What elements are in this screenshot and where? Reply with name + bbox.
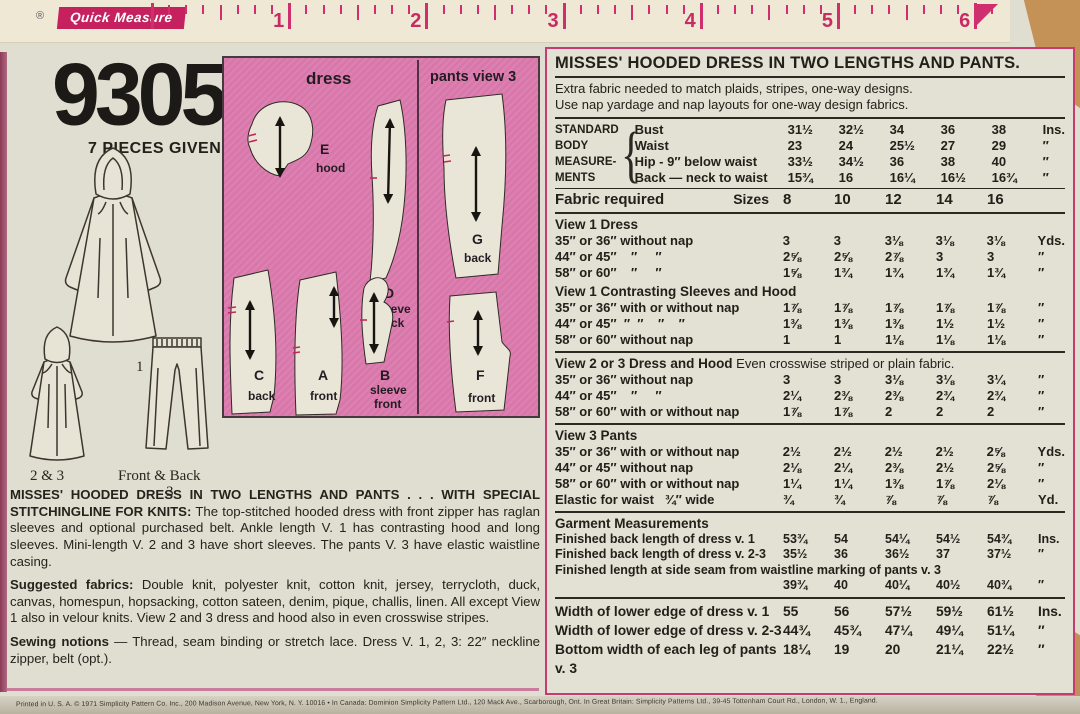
row-value: 37½ bbox=[987, 547, 1038, 563]
table-row: 35″ or 36″ with or without nap2½2½2½2½2⅝… bbox=[555, 444, 1065, 460]
row-value: 1⅜ bbox=[834, 316, 885, 332]
row-label: 35″ or 36″ with or without nap bbox=[555, 300, 783, 316]
row-unit: ″ bbox=[1038, 316, 1065, 332]
sewing-notions-lead: Sewing notions bbox=[10, 634, 109, 649]
body-measurements-block: STANDARDBODYMEASURE-MENTS { Bust31½32½34… bbox=[555, 122, 1065, 186]
description-paragraph: MISSES' HOODED DRESS IN TWO LENGTHS AND … bbox=[10, 487, 540, 570]
row-value: 3 bbox=[834, 372, 885, 388]
row-value: 3 bbox=[783, 372, 834, 388]
ruler-tick bbox=[837, 3, 840, 29]
row-value: 16½ bbox=[941, 170, 992, 186]
row-label: 58″ or 60″ ″ ″ bbox=[555, 265, 783, 281]
row-value: 2⅞ bbox=[885, 249, 936, 265]
row-value: 36 bbox=[834, 547, 885, 563]
row-label: Bottom width of each leg of pants v. 3 bbox=[555, 640, 783, 678]
table-row: 44″ or 45″ ″ ″ ″ ″1⅜1⅜1⅜1½1½″ bbox=[555, 316, 1065, 332]
row-value: 18¼ bbox=[783, 640, 834, 678]
row-value: 1⅞ bbox=[936, 300, 987, 316]
ruler-tick bbox=[511, 5, 513, 14]
row-value: 19 bbox=[834, 640, 885, 678]
row-label: Back — neck to waist bbox=[635, 170, 788, 186]
row-value: 38 bbox=[941, 154, 992, 170]
row-value: 2 bbox=[987, 404, 1038, 420]
row-label bbox=[555, 578, 783, 594]
row-value: 2⅝ bbox=[987, 444, 1038, 460]
suggested-fabrics-lead: Suggested fabrics: bbox=[10, 577, 133, 592]
suggested-fabrics-paragraph: Suggested fabrics: Double knit, polyeste… bbox=[10, 577, 540, 627]
row-unit: ″ bbox=[1038, 621, 1065, 640]
row-label: 35″ or 36″ without nap bbox=[555, 233, 783, 249]
row-value: 1⅛ bbox=[987, 332, 1038, 348]
row-value: 53¾ bbox=[783, 532, 834, 548]
ruler-tick bbox=[237, 5, 239, 14]
pattern-envelope-back: ® Quick Measure 123456 9305 7 PIECES GIV… bbox=[0, 0, 1080, 714]
row-value: 29 bbox=[992, 138, 1043, 154]
row-label: 44″ or 45″ ″ ″ ″ ″ bbox=[555, 316, 783, 332]
intro-line: Use nap yardage and nap layouts for one-… bbox=[555, 97, 1065, 113]
dress23-hood bbox=[44, 327, 70, 363]
row-value: 40½ bbox=[936, 578, 987, 594]
row-value: 2½ bbox=[936, 444, 987, 460]
pants-caption: Front & Back bbox=[118, 468, 201, 484]
ruler-tick bbox=[528, 5, 530, 14]
table-row: 35″ or 36″ with or without nap1⅞1⅞1⅞1⅞1⅞… bbox=[555, 300, 1065, 316]
ruler-tick bbox=[923, 5, 925, 14]
row-value: 36 bbox=[941, 122, 992, 138]
ruler-tick bbox=[323, 5, 325, 14]
row-value: 24 bbox=[839, 138, 890, 154]
row-value: 3⅛ bbox=[885, 233, 936, 249]
size-value: 14 bbox=[936, 191, 987, 208]
ruler-tick bbox=[631, 5, 633, 20]
row-value: ¾ bbox=[834, 492, 885, 508]
row-value: 2½ bbox=[783, 444, 834, 460]
fabric-required-label: Fabric required bbox=[555, 191, 664, 208]
ruler-tick bbox=[288, 3, 291, 29]
section-title: Garment Measurements bbox=[555, 516, 1065, 532]
row-label: Elastic for waist ¾″ wide bbox=[555, 492, 783, 508]
row-unit: ″ bbox=[1038, 300, 1065, 316]
ruler-number: 1 bbox=[264, 10, 284, 33]
pants-panel-header: pants view 3 bbox=[430, 69, 516, 85]
row-label: 58″ or 60″ with or without nap bbox=[555, 404, 783, 420]
rule bbox=[555, 76, 1065, 78]
body-measurements-header: STANDARDBODYMEASURE-MENTS bbox=[555, 122, 621, 186]
row-value: 3 bbox=[834, 233, 885, 249]
piece-name: front bbox=[310, 389, 337, 403]
dress-panel-header: dress bbox=[306, 69, 351, 88]
ruler-tick bbox=[220, 5, 222, 20]
yardage-section: View 1 Contrasting Sleeves and Hood35″ o… bbox=[555, 284, 1065, 348]
row-label: Width of lower edge of dress v. 2-3 bbox=[555, 621, 783, 640]
row-value: 16 bbox=[839, 170, 890, 186]
row-value: 3⅛ bbox=[936, 233, 987, 249]
piece-letter: C bbox=[254, 367, 264, 383]
piece-letter: E bbox=[320, 141, 329, 157]
row-unit: Ins. bbox=[1038, 602, 1065, 621]
row-unit: ″ bbox=[1038, 476, 1065, 492]
row-value: 3 bbox=[936, 249, 987, 265]
row-unit: ″ bbox=[1038, 578, 1065, 594]
table-row: Finished back length of dress v. 2-335½3… bbox=[555, 547, 1065, 563]
row-value: 51¼ bbox=[987, 621, 1038, 640]
row-label: 44″ or 45″ ″ ″ bbox=[555, 249, 783, 265]
row-label: 44″ or 45″ without nap bbox=[555, 460, 783, 476]
row-value: 49¼ bbox=[936, 621, 987, 640]
row-value: 2¾ bbox=[987, 388, 1038, 404]
row-value: 2½ bbox=[885, 444, 936, 460]
ruler-tick bbox=[185, 5, 187, 14]
row-value: 1⅜ bbox=[885, 316, 936, 332]
row-value: 2⅛ bbox=[987, 476, 1038, 492]
ruler-tick bbox=[751, 5, 753, 14]
row-value: 55 bbox=[783, 602, 834, 621]
row-value: 40¼ bbox=[885, 578, 936, 594]
table-row: Elastic for waist ¾″ wide¾¾⅞⅞⅞Yd. bbox=[555, 492, 1065, 508]
notch bbox=[447, 321, 454, 322]
row-value: 2½ bbox=[834, 444, 885, 460]
row-value: 1⅞ bbox=[783, 300, 834, 316]
row-value: 2¼ bbox=[834, 460, 885, 476]
yardage-sections: View 1 Dress35″ or 36″ without nap333⅛3⅛… bbox=[555, 217, 1065, 599]
row-unit: ″ bbox=[1038, 460, 1065, 476]
row-value: 61½ bbox=[987, 602, 1038, 621]
row-unit: ″ bbox=[1038, 372, 1065, 388]
row-value: 47¼ bbox=[885, 621, 936, 640]
row-value: 16¾ bbox=[992, 170, 1043, 186]
row-unit: Yds. bbox=[1038, 233, 1065, 249]
envelope-bottom-edge bbox=[6, 688, 539, 691]
ruler-tick bbox=[425, 3, 428, 29]
row-value: 2¾ bbox=[936, 388, 987, 404]
row-value: 54½ bbox=[936, 532, 987, 548]
row-value: 1 bbox=[834, 332, 885, 348]
table-row: 44″ or 45″ ″ ″2¼2⅜2⅜2¾2¾″ bbox=[555, 388, 1065, 404]
row-value: 1½ bbox=[936, 316, 987, 332]
row-unit: ″ bbox=[1038, 388, 1065, 404]
ruler-tick bbox=[151, 3, 154, 29]
view23-label: 2 & 3 bbox=[30, 468, 64, 484]
table-row: 35″ or 36″ without nap333⅛3⅛3⅛Yds. bbox=[555, 233, 1065, 249]
row-unit: ″ bbox=[1038, 265, 1065, 281]
ruler-tick bbox=[340, 5, 342, 14]
ruler-tick bbox=[940, 5, 942, 14]
piece-name: front bbox=[374, 397, 401, 411]
row-value: 1⅞ bbox=[834, 300, 885, 316]
row-value: 3 bbox=[783, 233, 834, 249]
row-value: 20 bbox=[885, 640, 936, 678]
notch bbox=[228, 312, 236, 313]
row-value: ⅞ bbox=[987, 492, 1038, 508]
ruler-tick bbox=[305, 5, 307, 14]
piece-letter: A bbox=[318, 367, 328, 383]
notch bbox=[228, 307, 236, 308]
row-value: 1⅛ bbox=[885, 332, 936, 348]
row-value: 2¼ bbox=[783, 388, 834, 404]
ruler-tick bbox=[906, 5, 908, 20]
table-row: 58″ or 60″ with or without nap1⅞1⅞222″ bbox=[555, 404, 1065, 420]
row-value: 2⅜ bbox=[885, 388, 936, 404]
piece-name: back bbox=[464, 251, 492, 265]
row-value: 1 bbox=[783, 332, 834, 348]
row-unit: Ins. bbox=[1038, 532, 1065, 548]
piece-name: front bbox=[468, 391, 495, 405]
panel-title: MISSES' HOODED DRESS IN TWO LENGTHS AND … bbox=[555, 54, 1065, 73]
yardage-section: View 1 Dress35″ or 36″ without nap333⅛3⅛… bbox=[555, 217, 1065, 281]
ruler-tick bbox=[254, 5, 256, 14]
rule bbox=[555, 212, 1065, 214]
ruler-tick bbox=[717, 5, 719, 14]
row-value: 1¾ bbox=[987, 265, 1038, 281]
row-value: 54¾ bbox=[987, 532, 1038, 548]
row-label: 58″ or 60″ without nap bbox=[555, 332, 783, 348]
row-value: 23 bbox=[788, 138, 839, 154]
size-values: 810121416 bbox=[783, 191, 1038, 209]
row-value: 44¾ bbox=[783, 621, 834, 640]
row-value: 2⅛ bbox=[783, 460, 834, 476]
ruler-tick bbox=[614, 5, 616, 14]
row-value: 1⅞ bbox=[936, 476, 987, 492]
row-value: 1¾ bbox=[834, 265, 885, 281]
fabric-required-row: Fabric requiredSizes 810121416 bbox=[555, 191, 1065, 209]
yardage-section: View 2 or 3 Dress and Hood Even crosswis… bbox=[555, 356, 1065, 420]
row-value: 40 bbox=[992, 154, 1043, 170]
table-row: 58″ or 60″ without nap111⅛1⅛1⅛″ bbox=[555, 332, 1065, 348]
ruler-tick bbox=[391, 5, 393, 14]
rule bbox=[555, 511, 1065, 513]
row-unit: Yd. bbox=[1038, 492, 1065, 508]
table-row: Width of lower edge of dress v. 2-344¾45… bbox=[555, 621, 1065, 640]
section-title: View 1 Contrasting Sleeves and Hood bbox=[555, 284, 1065, 300]
ruler-tick bbox=[786, 5, 788, 14]
row-unit: Yds. bbox=[1038, 444, 1065, 460]
notch bbox=[444, 161, 451, 162]
ruler-number: 2 bbox=[401, 10, 421, 33]
piece-name: sleeve bbox=[370, 383, 407, 397]
size-value: 8 bbox=[783, 191, 834, 208]
row-value: 2⅝ bbox=[834, 249, 885, 265]
row-value: 3⅛ bbox=[885, 372, 936, 388]
piece-letter: B bbox=[380, 367, 390, 383]
row-unit: ″ bbox=[1038, 640, 1065, 678]
row-value: 1⅜ bbox=[885, 476, 936, 492]
row-value: 2⅝ bbox=[783, 249, 834, 265]
table-row: Waist232425½2729″ bbox=[635, 138, 1065, 154]
piece-name: hood bbox=[316, 161, 345, 175]
row-label: Waist bbox=[635, 138, 788, 154]
ruler-tick bbox=[666, 5, 668, 14]
yardage-section: Garment MeasurementsFinished back length… bbox=[555, 516, 1065, 594]
row-value: 40 bbox=[834, 578, 885, 594]
ruler-number: 4 bbox=[676, 10, 696, 33]
row-label: Finished back length of dress v. 1 bbox=[555, 532, 783, 548]
row-value: 36 bbox=[890, 154, 941, 170]
table-row: Width of lower edge of dress v. 1555657½… bbox=[555, 602, 1065, 621]
row-value: 2 bbox=[885, 404, 936, 420]
registered-mark: ® bbox=[36, 10, 44, 22]
row-value: 1¼ bbox=[783, 476, 834, 492]
ruler-number: 6 bbox=[950, 10, 970, 33]
rule bbox=[555, 423, 1065, 425]
dress1-hood bbox=[95, 148, 131, 199]
row-value: 2⅜ bbox=[885, 460, 936, 476]
row-value: ⅞ bbox=[936, 492, 987, 508]
row-value: 16¼ bbox=[890, 170, 941, 186]
size-value: 12 bbox=[885, 191, 936, 208]
ruler-tick bbox=[991, 5, 993, 14]
row-unit: ″ bbox=[1038, 249, 1065, 265]
ruler-tick bbox=[700, 3, 703, 29]
row-value: 1⅝ bbox=[783, 265, 834, 281]
intro-line: Extra fabric needed to match plaids, str… bbox=[555, 81, 1065, 97]
row-value: 57½ bbox=[885, 602, 936, 621]
view1-label: 1 bbox=[136, 359, 144, 375]
ruler-tick bbox=[888, 5, 890, 14]
table-row: Back — neck to waist15¾1616¼16½16¾″ bbox=[635, 170, 1065, 186]
notch bbox=[293, 352, 300, 353]
ruler-tick bbox=[974, 3, 977, 29]
row-unit: ″ bbox=[1043, 170, 1065, 186]
row-value: 1⅞ bbox=[783, 404, 834, 420]
row-value: 1¼ bbox=[834, 476, 885, 492]
row-value: 37 bbox=[936, 547, 987, 563]
garment-illustrations: 1 2 & 3 Front & Back 3 bbox=[8, 128, 220, 500]
yardage-table-panel: MISSES' HOODED DRESS IN TWO LENGTHS AND … bbox=[545, 47, 1075, 695]
row-value: 36½ bbox=[885, 547, 936, 563]
ruler-tick bbox=[768, 5, 770, 20]
table-row: 44″ or 45″ ″ ″2⅝2⅝2⅞33″ bbox=[555, 249, 1065, 265]
row-unit: ″ bbox=[1043, 138, 1065, 154]
ruler-tick bbox=[871, 5, 873, 14]
body-measurements-rows: Bust31½32½343638Ins.Waist232425½2729″Hip… bbox=[635, 122, 1065, 186]
row-value: 15¾ bbox=[788, 170, 839, 186]
piece-name: back bbox=[248, 389, 276, 403]
yardage-section: View 3 Pants35″ or 36″ with or without n… bbox=[555, 428, 1065, 508]
row-value: 59½ bbox=[936, 602, 987, 621]
row-value: 2 bbox=[936, 404, 987, 420]
row-label: Width of lower edge of dress v. 1 bbox=[555, 602, 783, 621]
ruler-tick bbox=[580, 5, 582, 14]
table-row: Bottom width of each leg of pants v. 318… bbox=[555, 640, 1065, 678]
row-value: ⅞ bbox=[885, 492, 936, 508]
section-title: View 2 or 3 Dress and Hood Even crosswis… bbox=[555, 356, 1065, 372]
row-value: 27 bbox=[941, 138, 992, 154]
row-value: 34½ bbox=[839, 154, 890, 170]
row-label: Finished length at side seam from waistl… bbox=[555, 563, 1065, 579]
row-label: Finished back length of dress v. 2-3 bbox=[555, 547, 783, 563]
ruler-tick bbox=[202, 5, 204, 14]
row-value: 1½ bbox=[987, 316, 1038, 332]
row-value: 1⅜ bbox=[783, 316, 834, 332]
rule bbox=[555, 351, 1065, 353]
row-value: 45¾ bbox=[834, 621, 885, 640]
envelope-left-edge bbox=[0, 52, 7, 692]
pattern-pieces-diagram: dress pants view 3 E hood D sleeve back … bbox=[224, 58, 538, 416]
row-value: 34 bbox=[890, 122, 941, 138]
row-value: 40¾ bbox=[987, 578, 1038, 594]
row-value: 54¼ bbox=[885, 532, 936, 548]
rule bbox=[555, 597, 1065, 599]
ruler-end-triangle bbox=[976, 4, 998, 26]
description-block: MISSES' HOODED DRESS IN TWO LENGTHS AND … bbox=[10, 487, 540, 674]
section-title: View 3 Pants bbox=[555, 428, 1065, 444]
ruler-tick bbox=[443, 5, 445, 14]
table-row: Hip - 9″ below waist33½34½363840″ bbox=[635, 154, 1065, 170]
row-value: 56 bbox=[834, 602, 885, 621]
row-value: 1⅞ bbox=[987, 300, 1038, 316]
row-value: 38 bbox=[992, 122, 1043, 138]
row-unit: ″ bbox=[1038, 332, 1065, 348]
row-label: 35″ or 36″ without nap bbox=[555, 372, 783, 388]
ruler-tick bbox=[357, 5, 359, 20]
row-value: 2⅜ bbox=[834, 388, 885, 404]
table-row: 58″ or 60″ ″ ″1⅝1¾1¾1¾1¾″ bbox=[555, 265, 1065, 281]
ruler-tick bbox=[854, 5, 856, 14]
row-value: 33½ bbox=[788, 154, 839, 170]
width-measurements-block: Width of lower edge of dress v. 1555657½… bbox=[555, 602, 1065, 678]
row-value: 3⅛ bbox=[936, 372, 987, 388]
ruler-tick bbox=[803, 5, 805, 14]
row-value: 1⅞ bbox=[834, 404, 885, 420]
table-row: 39¾4040¼40½40¾″ bbox=[555, 578, 1065, 594]
row-value: 35½ bbox=[783, 547, 834, 563]
row-value: 3 bbox=[987, 249, 1038, 265]
brace-glyph: { bbox=[621, 120, 631, 187]
row-value: 1¾ bbox=[885, 265, 936, 281]
row-value: 31½ bbox=[788, 122, 839, 138]
row-value: 2⅝ bbox=[987, 460, 1038, 476]
row-label: 58″ or 60″ with or without nap bbox=[555, 476, 783, 492]
row-unit: Ins. bbox=[1043, 122, 1065, 138]
piece-letter: F bbox=[476, 367, 485, 383]
row-value: 1¾ bbox=[936, 265, 987, 281]
row-value: ¾ bbox=[783, 492, 834, 508]
piece-B-sleeve-front bbox=[362, 278, 393, 364]
row-value: 25½ bbox=[890, 138, 941, 154]
row-label: Bust bbox=[635, 122, 788, 138]
notch bbox=[443, 155, 450, 156]
row-value: 39¾ bbox=[783, 578, 834, 594]
row-unit: ″ bbox=[1038, 404, 1065, 420]
ruler-tick bbox=[168, 5, 170, 14]
notch bbox=[293, 347, 300, 348]
table-row: 35″ or 36″ without nap333⅛3⅛3¼″ bbox=[555, 372, 1065, 388]
table-row: Finished length at side seam from waistl… bbox=[555, 563, 1065, 579]
quick-measure-badge: Quick Measure bbox=[57, 7, 186, 29]
rule bbox=[555, 117, 1065, 119]
ruler-tick bbox=[648, 5, 650, 14]
ruler-tick bbox=[374, 5, 376, 14]
row-label: Hip - 9″ below waist bbox=[635, 154, 788, 170]
row-value: 1⅞ bbox=[885, 300, 936, 316]
ruler-number: 3 bbox=[539, 10, 559, 33]
size-value: 16 bbox=[987, 191, 1038, 208]
pattern-pieces-panel: dress pants view 3 E hood D sleeve back … bbox=[222, 56, 540, 418]
ruler-tick bbox=[563, 3, 566, 29]
ruler-tick bbox=[460, 5, 462, 14]
row-label: 35″ or 36″ with or without nap bbox=[555, 444, 783, 460]
row-value: 3¼ bbox=[987, 372, 1038, 388]
table-row: Finished back length of dress v. 153¾545… bbox=[555, 532, 1065, 548]
ruler-tick bbox=[494, 5, 496, 20]
table-row: Bust31½32½343638Ins. bbox=[635, 122, 1065, 138]
table-row: 44″ or 45″ without nap2⅛2¼2⅜2½2⅝″ bbox=[555, 460, 1065, 476]
row-unit: ″ bbox=[1038, 547, 1065, 563]
row-value: 2½ bbox=[936, 460, 987, 476]
ruler-tick bbox=[734, 5, 736, 14]
row-value: 21¼ bbox=[936, 640, 987, 678]
row-value: 22½ bbox=[987, 640, 1038, 678]
